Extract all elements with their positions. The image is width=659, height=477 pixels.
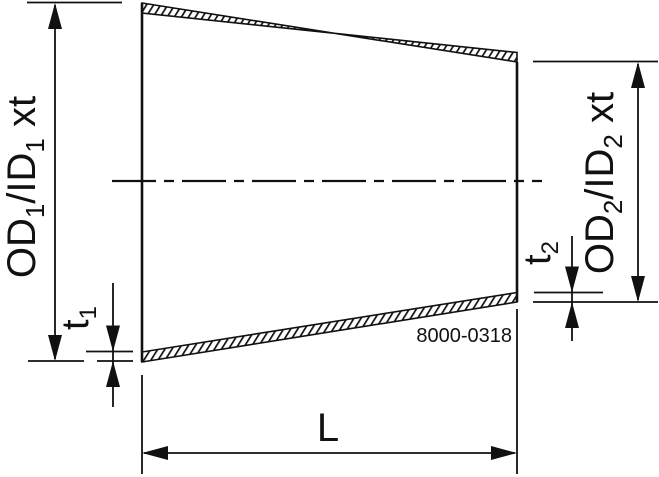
t1-arrow-up (106, 361, 120, 387)
dimension-t1: t1 (55, 283, 133, 407)
reducer-body (112, 3, 542, 362)
od1-arrow-down (48, 335, 62, 361)
reducer-technical-drawing: OD1/ID1 xt t1 OD2/ID2 xt t2 (0, 0, 659, 477)
od2-arrow-down (631, 276, 645, 302)
dimension-od1: OD1/ID1 xt (0, 3, 122, 362)
length-arrow-right (491, 446, 517, 460)
t2-arrow-up (565, 302, 579, 328)
od1-arrow-up (48, 3, 62, 29)
t1-label: t1 (55, 306, 102, 330)
od1-label: OD1/ID1 xt (0, 96, 50, 278)
length-arrow-left (142, 446, 168, 460)
t2-label: t2 (517, 241, 564, 265)
top-wall-hatched (142, 3, 517, 62)
part-number: 8000-0318 (416, 325, 512, 347)
od2-label: OD2/ID2 xt (578, 92, 628, 274)
length-label: L (317, 406, 339, 450)
od2-arrow-up (631, 62, 645, 88)
t1-arrow-down (106, 326, 120, 352)
drawing-canvas: OD1/ID1 xt t1 OD2/ID2 xt t2 (0, 0, 659, 477)
t2-arrow-down (565, 267, 579, 293)
